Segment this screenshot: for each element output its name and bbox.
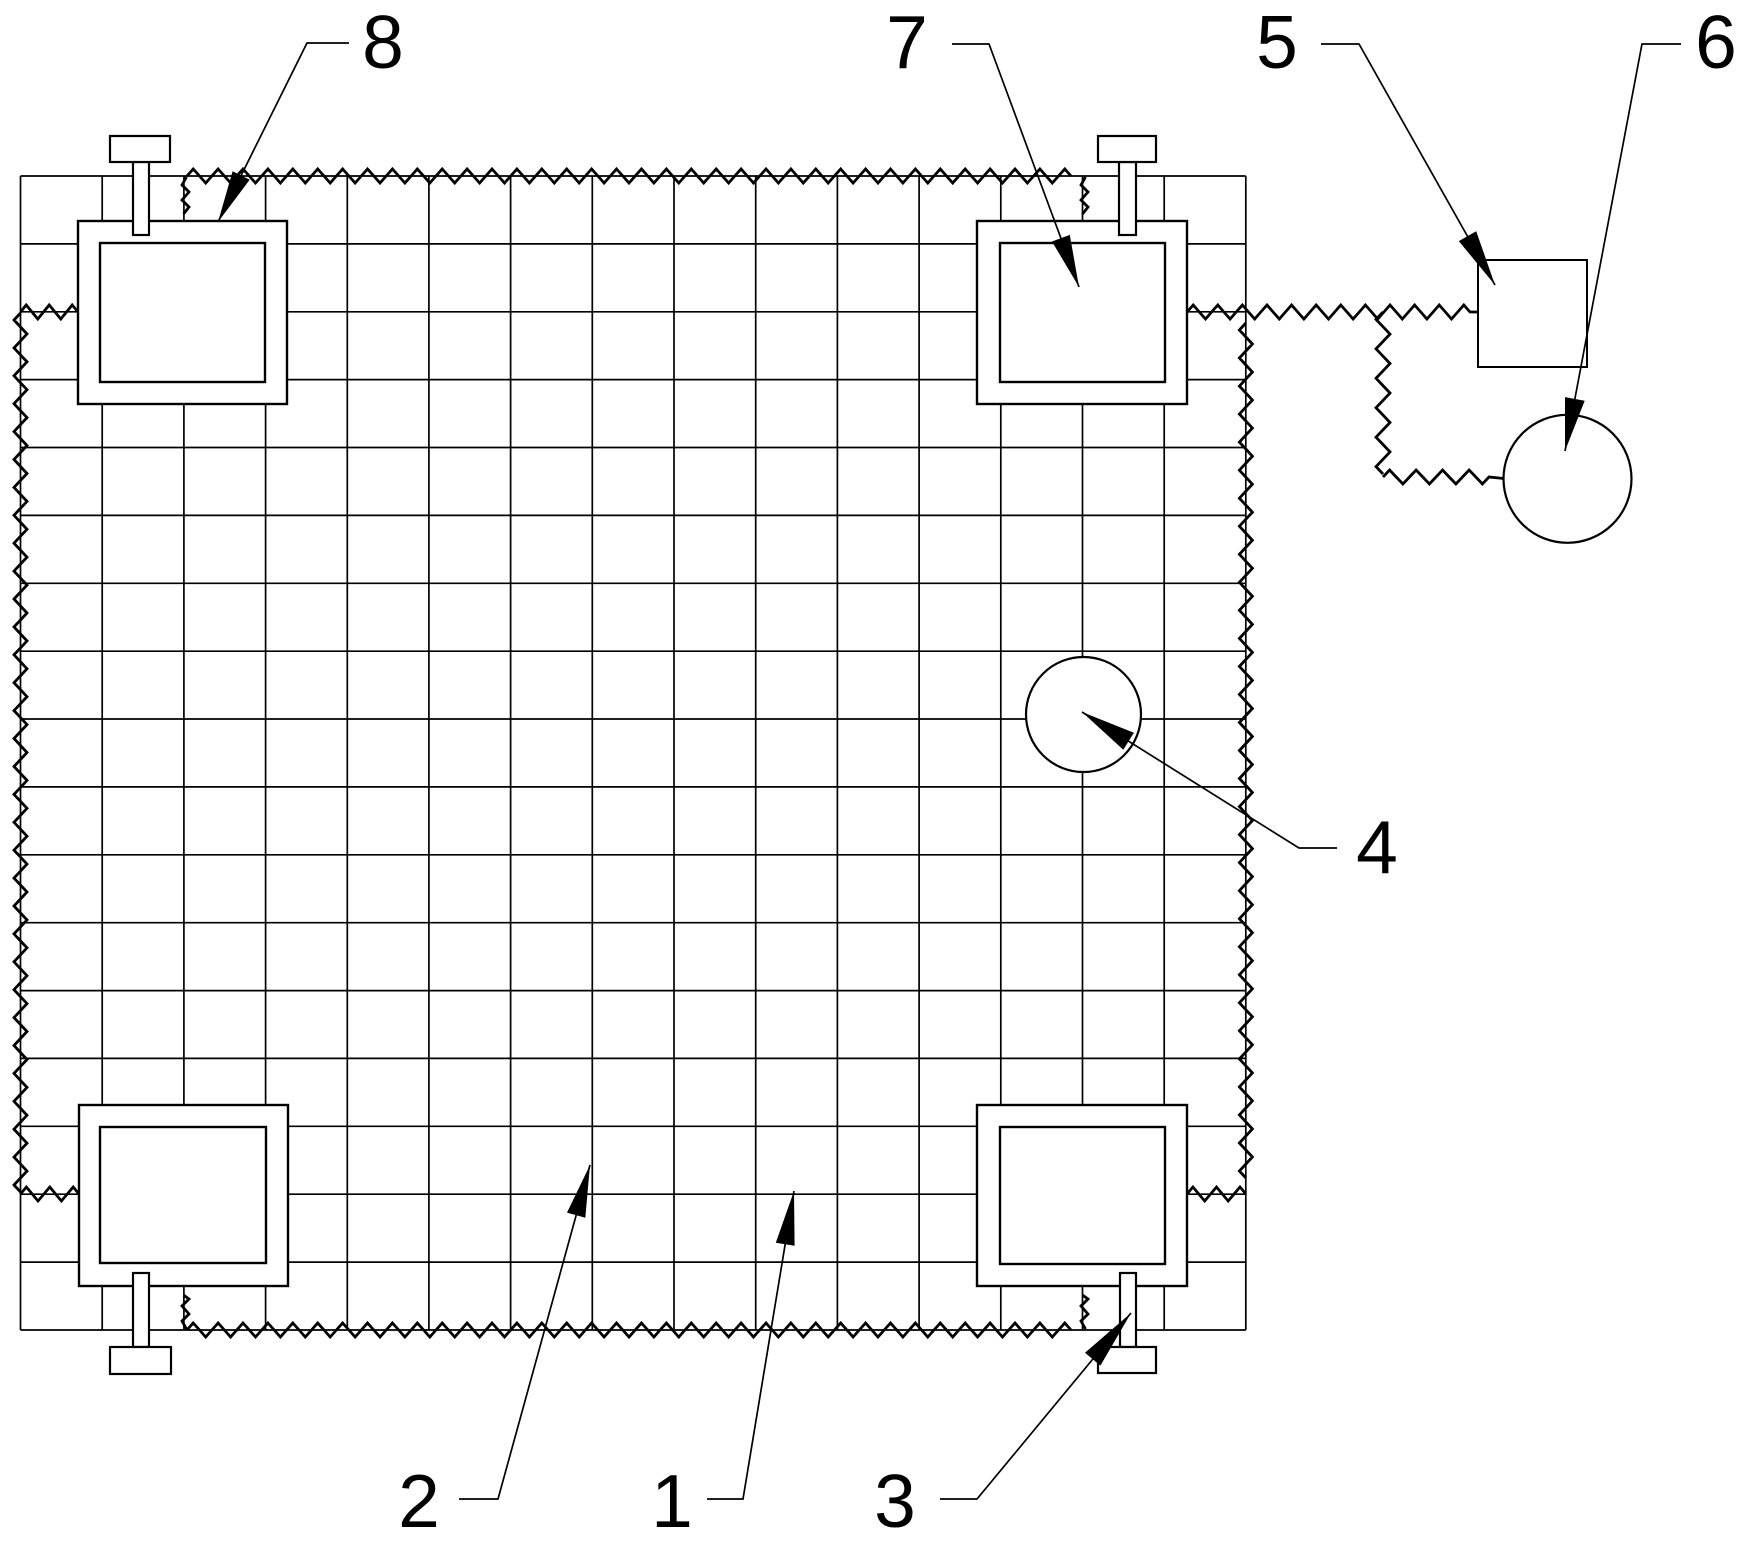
svg-text:3: 3 (874, 1459, 916, 1541)
svg-text:7: 7 (886, 0, 928, 84)
svg-text:2: 2 (398, 1459, 440, 1541)
svg-text:6: 6 (1695, 0, 1737, 84)
svg-text:4: 4 (1356, 805, 1398, 889)
svg-text:1: 1 (651, 1459, 693, 1541)
svg-text:8: 8 (362, 0, 404, 84)
svg-text:5: 5 (1256, 0, 1298, 84)
